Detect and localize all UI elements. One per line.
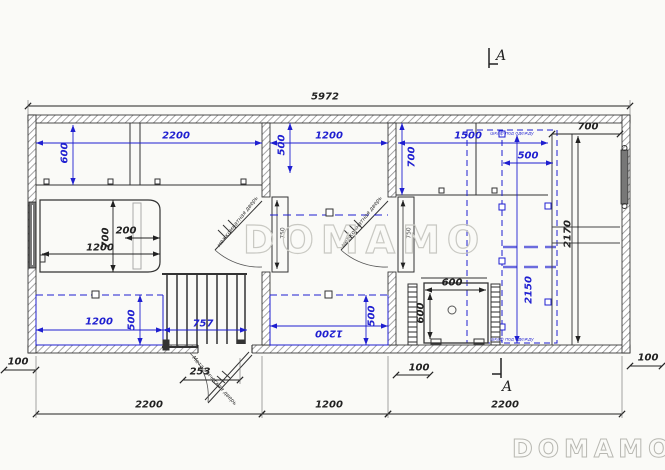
window-right — [621, 146, 628, 209]
dim-bottom-room2: 1200 — [315, 400, 343, 411]
dim-bottom-room3: 2200 — [491, 400, 519, 411]
dim-wardrobe-top: 500 — [518, 151, 539, 162]
dim-room2-bottom: 1200 — [315, 328, 343, 339]
watermark-corner: DOMAMO — [512, 434, 665, 463]
floor-plan-page: 5972 2200 600 1200 500 1500 700 500 2150… — [0, 0, 665, 470]
dim-shower-width: 600 — [442, 278, 463, 289]
dim-overall-width: 5972 — [311, 92, 339, 103]
dim-room2-side: 500 — [277, 135, 288, 156]
dim-offset-mid: 100 — [409, 363, 430, 374]
dim-shower-depth: 600 — [416, 303, 427, 324]
dim-radiator: 757 — [193, 319, 214, 330]
wardrobe-top-note: шкаф под одежду — [490, 132, 534, 137]
dim-room3-top: 1500 — [454, 131, 482, 142]
window-left — [29, 202, 36, 268]
dim-cabinet-height: 2170 — [563, 220, 574, 248]
dim-room1-bottom-side: 500 — [127, 310, 138, 331]
section-marker-bottom-label: A — [502, 379, 512, 395]
dim-bottom-room1: 2200 — [135, 400, 163, 411]
dim-room2-top: 1200 — [315, 131, 343, 142]
dim-room2-bottom-side: 500 — [367, 306, 378, 327]
watermark-center: DOMAMO — [243, 218, 486, 262]
dim-room1-bottom: 1200 — [85, 317, 113, 328]
dim-room1-side: 600 — [60, 143, 71, 164]
dim-bed-shelf: 200 — [116, 226, 137, 237]
dim-shelf-top: 700 — [578, 122, 599, 133]
radiator — [162, 274, 247, 350]
dim-room3-side: 700 — [407, 147, 418, 168]
section-marker-top-label: A — [496, 48, 506, 64]
dim-offset-left: 100 — [8, 357, 29, 368]
dim-room1-top: 2200 — [162, 131, 190, 142]
dim-offset-right: 100 — [638, 353, 659, 364]
dim-wardrobe-height: 2150 — [524, 276, 535, 304]
dim-bed-width: 700 — [101, 228, 112, 249]
wardrobe-bottom-note: шкаф под одежду — [490, 338, 534, 343]
